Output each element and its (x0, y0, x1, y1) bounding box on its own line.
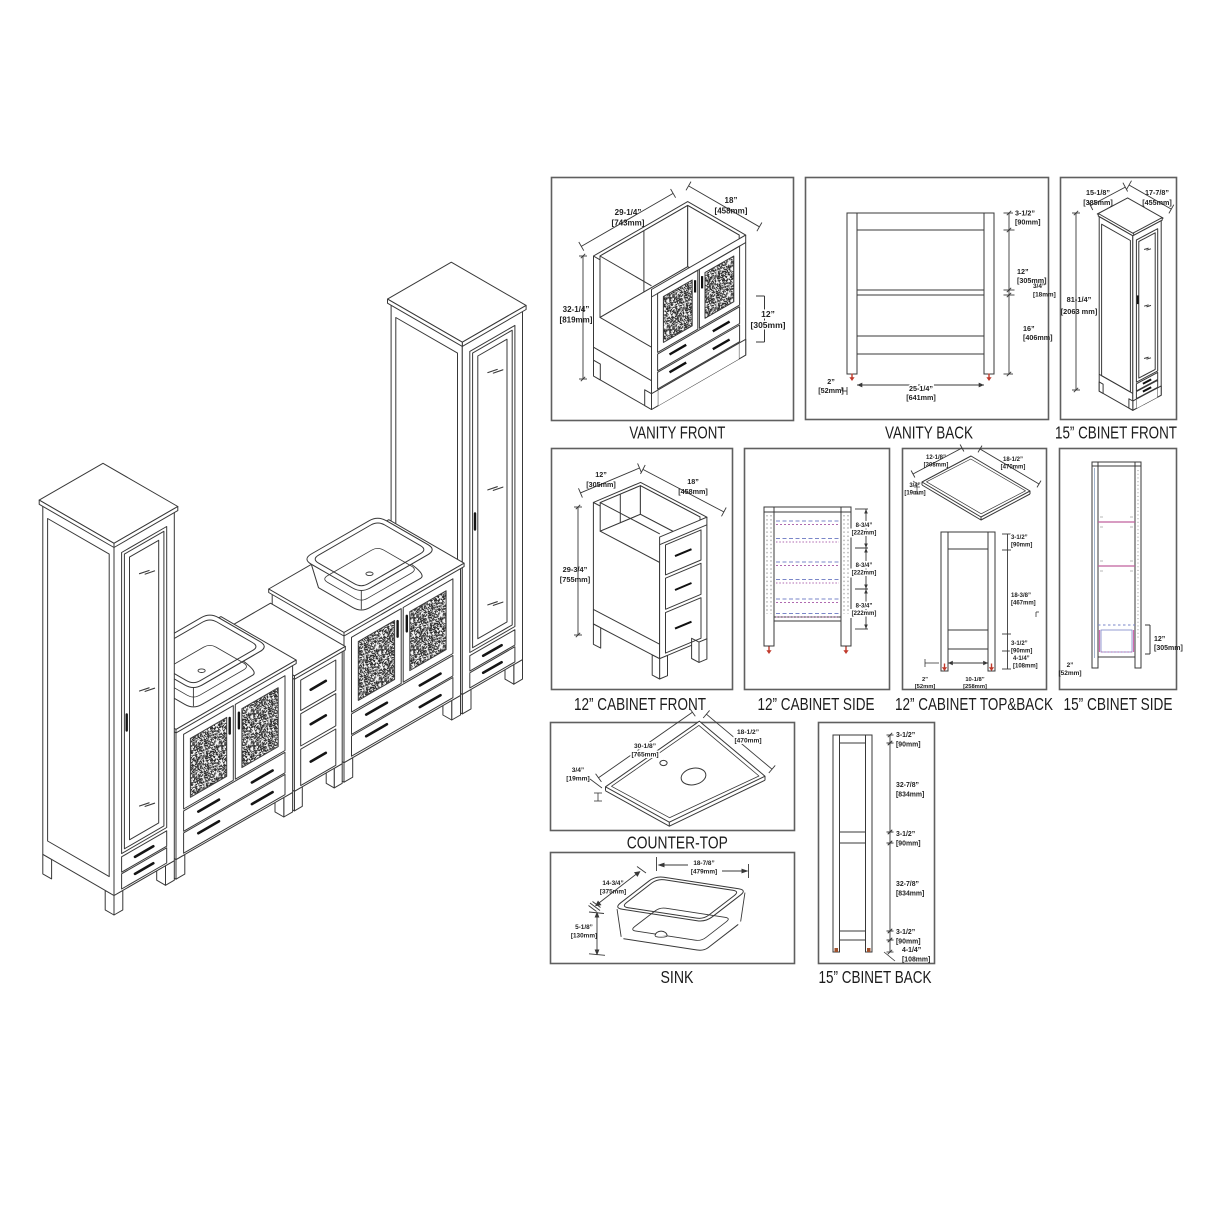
svg-text:[455mm]: [455mm] (1142, 198, 1172, 207)
svg-text:3/4”: 3/4” (909, 483, 920, 489)
svg-text:[479mm]: [479mm] (691, 868, 717, 875)
svg-text:2”: 2” (922, 677, 928, 683)
svg-text:15-1/8”: 15-1/8” (1086, 188, 1110, 197)
svg-text:VANITY BACK: VANITY BACK (885, 423, 973, 443)
svg-text:29-1/4”: 29-1/4” (615, 208, 642, 217)
svg-text:3-1/2”: 3-1/2” (896, 929, 915, 936)
svg-text:VANITY FRONT: VANITY FRONT (629, 423, 725, 443)
svg-text:[458mm]: [458mm] (678, 487, 708, 496)
svg-text:32-1/4”: 32-1/4” (563, 305, 590, 314)
svg-text:[834mm]: [834mm] (896, 792, 924, 799)
svg-text:[90mm]: [90mm] (1011, 543, 1032, 549)
svg-text:8-3/4”: 8-3/4” (856, 523, 873, 529)
svg-text:32-7/8”: 32-7/8” (896, 782, 919, 789)
svg-text:30-1/8”: 30-1/8” (634, 743, 656, 750)
svg-text:[305mm]: [305mm] (751, 320, 786, 330)
svg-text:18”: 18” (687, 477, 699, 486)
svg-text:3-1/2”: 3-1/2” (1015, 209, 1035, 218)
svg-text:18-7/8”: 18-7/8” (693, 860, 714, 867)
svg-text:[467mm]: [467mm] (1011, 601, 1036, 607)
svg-text:[222mm]: [222mm] (852, 611, 877, 617)
svg-text:[765mm]: [765mm] (631, 752, 658, 759)
svg-text:32-7/8”: 32-7/8” (896, 881, 919, 888)
svg-text:[755mm]: [755mm] (560, 575, 591, 584)
svg-text:3-1/2”: 3-1/2” (1011, 641, 1028, 647)
svg-text:15” CBINET FRONT: 15” CBINET FRONT (1055, 423, 1177, 443)
svg-text:[108mm]: [108mm] (1013, 664, 1038, 670)
svg-text:[258mm]: [258mm] (963, 684, 987, 690)
svg-text:[305mm]: [305mm] (586, 480, 616, 489)
svg-text:[2063 mm]: [2063 mm] (1061, 307, 1098, 316)
svg-text:[90mm]: [90mm] (1015, 218, 1041, 227)
svg-text:[385mm]: [385mm] (1083, 198, 1113, 207)
svg-text:[222mm]: [222mm] (852, 571, 877, 577)
svg-text:17-7/8”: 17-7/8” (1145, 188, 1169, 197)
svg-text:12”: 12” (761, 309, 775, 319)
svg-text:[52mm]: [52mm] (915, 684, 936, 690)
svg-text:12” CABINET FRONT: 12” CABINET FRONT (574, 694, 706, 714)
svg-text:12-1/8”: 12-1/8” (926, 455, 946, 461)
svg-text:8-3/4”: 8-3/4” (856, 563, 873, 569)
svg-text:12” CABINET SIDE: 12” CABINET SIDE (758, 694, 875, 714)
svg-text:12”: 12” (1154, 636, 1165, 643)
svg-text:81-1/4”: 81-1/4” (1067, 295, 1092, 304)
svg-text:29-3/4”: 29-3/4” (563, 565, 588, 574)
svg-text:[406mm]: [406mm] (1023, 333, 1053, 342)
svg-text:3/4”: 3/4” (1033, 283, 1045, 290)
svg-text:[19mm]: [19mm] (904, 491, 925, 497)
svg-text:12” CABINET TOP&BACK: 12” CABINET TOP&BACK (895, 694, 1053, 714)
svg-text:[222mm]: [222mm] (852, 531, 877, 537)
svg-text:[641mm]: [641mm] (906, 393, 936, 402)
svg-text:[108mm]: [108mm] (902, 957, 930, 964)
svg-text:5-1/8”: 5-1/8” (575, 924, 593, 931)
svg-text:18-1/2”: 18-1/2” (1003, 457, 1023, 463)
svg-text:[90mm]: [90mm] (896, 939, 921, 946)
svg-text:18-3/8”: 18-3/8” (1011, 593, 1031, 599)
svg-text:[130mm]: [130mm] (571, 932, 597, 939)
svg-text:[18mm]: [18mm] (1033, 292, 1056, 299)
svg-text:[90mm]: [90mm] (1011, 649, 1032, 655)
svg-text:[308mm]: [308mm] (924, 463, 949, 469)
svg-text:3-1/2”: 3-1/2” (896, 831, 915, 838)
svg-text:18-1/2”: 18-1/2” (737, 729, 759, 736)
svg-text:SINK: SINK (661, 967, 694, 987)
svg-text:[52mm]: [52mm] (1058, 670, 1081, 677)
svg-text:2”: 2” (1067, 662, 1074, 669)
svg-text:3-1/2”: 3-1/2” (896, 732, 915, 739)
svg-text:[470mm]: [470mm] (734, 738, 761, 745)
svg-text:25-1/4”: 25-1/4” (909, 384, 933, 393)
svg-text:8-3/4”: 8-3/4” (856, 604, 873, 610)
svg-text:12”: 12” (1017, 267, 1029, 276)
svg-text:18”: 18” (725, 196, 738, 205)
svg-text:12”: 12” (595, 470, 607, 479)
svg-text:[90mm]: [90mm] (896, 742, 921, 749)
svg-text:3-1/2”: 3-1/2” (1011, 535, 1028, 541)
svg-text:[834mm]: [834mm] (896, 891, 924, 898)
svg-text:10-1/8”: 10-1/8” (965, 677, 984, 683)
svg-text:[470mm]: [470mm] (1001, 465, 1026, 471)
svg-text:2”: 2” (827, 377, 835, 386)
svg-text:4-1/4”: 4-1/4” (1013, 656, 1030, 662)
svg-text:[458mm]: [458mm] (715, 207, 748, 216)
svg-text:3/4”: 3/4” (572, 767, 584, 774)
svg-text:[743mm]: [743mm] (612, 219, 645, 228)
svg-text:16”: 16” (1023, 324, 1035, 333)
svg-text:15” CBINET BACK: 15” CBINET BACK (819, 967, 932, 987)
svg-text:15” CBINET SIDE: 15” CBINET SIDE (1064, 694, 1173, 714)
svg-text:[90mm]: [90mm] (896, 841, 921, 848)
svg-text:COUNTER-TOP: COUNTER-TOP (627, 833, 728, 853)
svg-text:[52mm]: [52mm] (818, 386, 844, 395)
svg-text:[305mm]: [305mm] (1154, 645, 1183, 652)
svg-text:4-1/4”: 4-1/4” (902, 947, 921, 954)
svg-text:[19mm]: [19mm] (566, 776, 589, 783)
svg-text:[819mm]: [819mm] (560, 316, 593, 325)
